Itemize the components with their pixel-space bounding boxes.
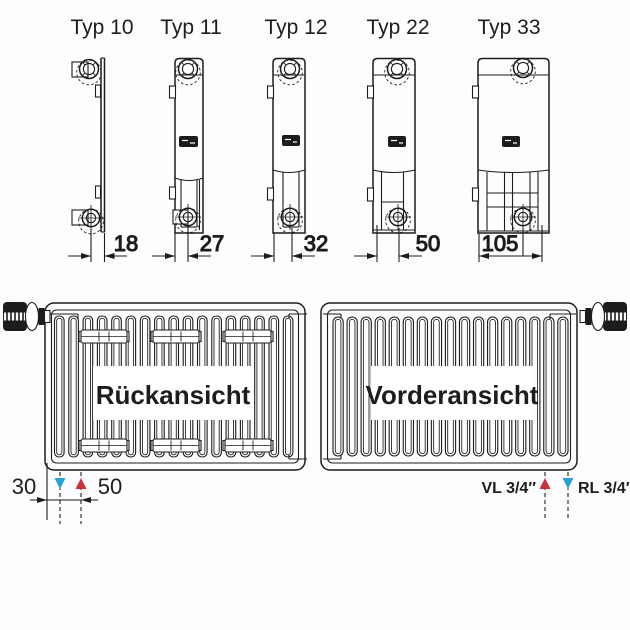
mounting-bracket [223,330,273,343]
rear-fin-inner [286,318,291,455]
mounting-bracket [79,330,129,343]
radiator-technical-diagram: Typ 10 Typ 11 Typ 12 [0,0,630,630]
brand-badge [282,135,300,146]
rear-fin [283,316,293,457]
thermostat-head-icon [3,302,78,331]
wall-clip [368,86,374,98]
pipe-spacing-dim: 50 [98,474,122,499]
rear-fin [55,316,65,457]
return-flow-arrow-icon [563,478,574,489]
top-valve-connection-icon [77,60,102,85]
front-connection-labels: VL 3/4″ RL 3/4″ [481,472,630,520]
thermostat-head-icon [550,302,627,331]
wall-clip [473,188,479,201]
front-view-label: Vorderansicht [366,380,539,410]
edge-offset-dim: 30 [12,474,36,499]
return-flow-arrow-icon [55,478,66,489]
typ-33-depth: 105 [482,231,519,256]
section-break [175,178,203,181]
front-rib-inner [335,319,341,453]
mounting-bracket [151,330,201,343]
section-break [373,170,415,173]
front-rib [333,317,343,456]
top-valve-connection-icon [176,60,201,85]
wall-clip [268,188,274,200]
rear-fin [69,316,79,457]
typ-12-depth: 32 [304,231,328,256]
typ-22-side-view: Typ 22 [366,16,429,233]
typ-11-depth: 27 [200,231,224,256]
valve-connections [77,59,536,234]
wall-clip [96,186,101,198]
front-rib-inner [560,319,566,453]
typ-10-depth: 18 [114,231,138,256]
return-pipe-label: RL 3/4″ [578,480,630,497]
mounting-bracket [79,439,129,452]
bottom-valve-bracket [72,210,88,225]
wall-clip [268,86,274,98]
typ-11-side-view: Typ 11 [160,16,221,233]
depth-dimensions: 18 27 32 50 105 [68,225,542,262]
top-valve-connection-icon [511,59,536,84]
typ-33-label: Typ 33 [477,16,540,39]
front-view: Vorderansicht VL 3/4″ [321,302,630,520]
wall-clip [170,187,176,199]
top-valve-connection-icon [278,60,303,85]
front-rib-inner [349,319,355,453]
corner-reference-marks [323,314,341,459]
brand-badge [179,136,198,147]
section-break [273,170,305,173]
supply-flow-arrow-icon [76,478,87,489]
mounting-bracket [151,439,201,452]
typ-22-depth: 50 [416,231,440,256]
mounting-bracket [223,439,273,452]
rear-fin-inner [71,318,76,455]
typ-12-label: Typ 12 [264,16,327,39]
typ-10-label: Typ 10 [70,16,133,39]
flow-pipe-label: VL 3/4″ [481,480,536,497]
front-rib-inner [546,319,552,453]
wall-clip [96,85,101,97]
diagram-canvas: Typ 10 Typ 11 Typ 12 [0,0,630,630]
front-rib [558,317,568,456]
wall-clip [368,188,374,201]
typ-33-side-view: Typ 33 [473,16,550,233]
rear-view: Rückansicht [3,302,307,524]
bottom-valve-connection-icon [385,204,411,233]
typ-11-label: Typ 11 [160,16,221,39]
rear-view-label: Rückansicht [96,380,251,410]
rear-connection-dimensions: 30 50 [12,463,122,524]
wall-clip [473,86,479,98]
brand-badge [388,136,406,147]
wall-clip [170,86,176,98]
front-rib [544,317,554,456]
front-rib [347,317,357,456]
top-valve-connection-icon [385,60,410,85]
brand-badge [502,136,520,147]
typ-22-label: Typ 22 [366,16,429,39]
typ-10-side-view: Typ 10 [70,16,133,232]
supply-flow-arrow-icon [540,478,551,489]
typ-12-side-view: Typ 12 [264,16,327,233]
rear-fin-inner [57,318,62,455]
